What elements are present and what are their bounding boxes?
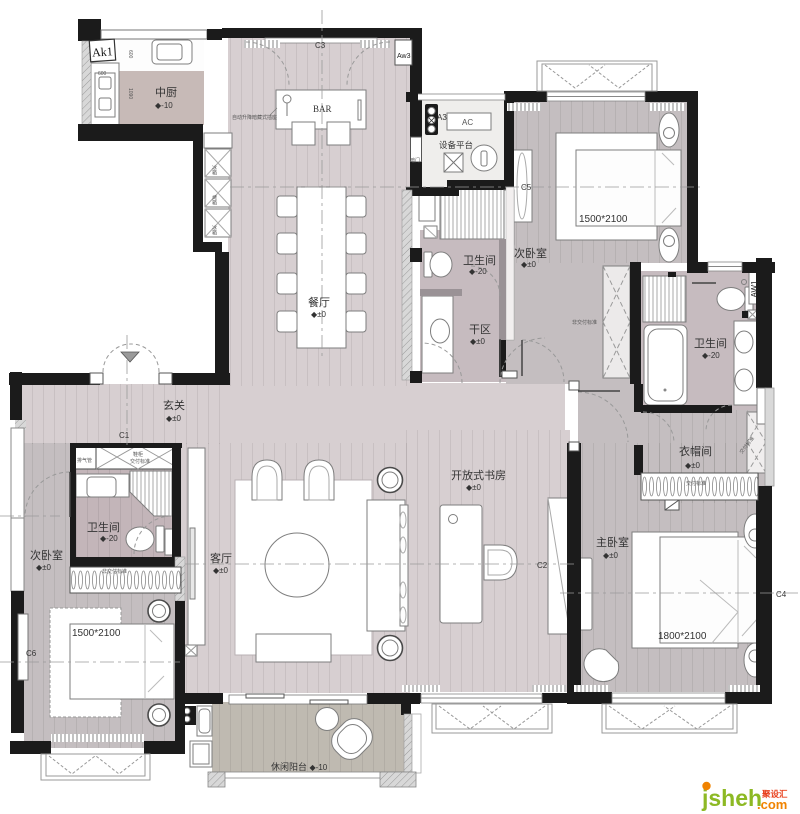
svg-text:非交付标准: 非交付标准 bbox=[102, 568, 127, 575]
svg-text:餐厅: 餐厅 bbox=[308, 295, 330, 309]
svg-text:暗门: 暗门 bbox=[410, 157, 420, 164]
svg-text:.com: .com bbox=[757, 797, 787, 812]
svg-text:冰箱: 冰箱 bbox=[211, 164, 217, 176]
svg-text:C5: C5 bbox=[521, 183, 532, 192]
svg-text:非交付标准: 非交付标准 bbox=[572, 319, 597, 326]
svg-text:交付标准: 交付标准 bbox=[686, 480, 706, 487]
svg-text:BAR: BAR bbox=[313, 104, 332, 114]
svg-text:◆±0: ◆±0 bbox=[36, 563, 52, 572]
svg-text:主卧室: 主卧室 bbox=[596, 535, 629, 549]
svg-text:◆±0: ◆±0 bbox=[603, 551, 619, 560]
svg-text:客厅: 客厅 bbox=[210, 551, 232, 565]
svg-text:冰箱: 冰箱 bbox=[211, 224, 217, 236]
svg-text:600: 600 bbox=[127, 50, 133, 59]
svg-text:玄关: 玄关 bbox=[163, 398, 185, 412]
svg-text:卫生间: 卫生间 bbox=[694, 336, 727, 350]
svg-text:◆±0: ◆±0 bbox=[166, 414, 182, 423]
svg-text:◆±0: ◆±0 bbox=[685, 461, 701, 470]
svg-text:排气管: 排气管 bbox=[77, 457, 92, 464]
svg-text:◆-20: ◆-20 bbox=[469, 267, 487, 276]
svg-text:A3: A3 bbox=[437, 113, 447, 122]
svg-text:◆-20: ◆-20 bbox=[702, 351, 720, 360]
svg-text:◆±0: ◆±0 bbox=[213, 566, 229, 575]
svg-text:Ak1: Ak1 bbox=[92, 44, 114, 59]
svg-text:1800*2100: 1800*2100 bbox=[658, 631, 707, 642]
svg-text:次卧室: 次卧室 bbox=[514, 246, 547, 260]
svg-text:1500*2100: 1500*2100 bbox=[72, 628, 121, 639]
svg-text:AC: AC bbox=[462, 118, 473, 127]
svg-text:开放式书房: 开放式书房 bbox=[451, 468, 506, 482]
svg-text:衣帽间: 衣帽间 bbox=[679, 444, 712, 458]
svg-text:设备平台: 设备平台 bbox=[439, 140, 473, 150]
svg-text:1090: 1090 bbox=[127, 88, 133, 99]
svg-text:鞋柜: 鞋柜 bbox=[133, 451, 143, 458]
svg-text:C6: C6 bbox=[26, 649, 37, 658]
svg-text:1500*2100: 1500*2100 bbox=[579, 214, 628, 225]
svg-text:◆-10: ◆-10 bbox=[155, 101, 173, 110]
svg-text:AW1: AW1 bbox=[750, 280, 759, 298]
svg-text:jsheh: jsheh bbox=[701, 785, 762, 811]
svg-text:◆±0: ◆±0 bbox=[311, 310, 327, 319]
svg-text:C4: C4 bbox=[776, 590, 787, 599]
svg-text:次卧室: 次卧室 bbox=[30, 548, 63, 562]
svg-text:聚设汇: 聚设汇 bbox=[761, 789, 788, 799]
svg-text:中厨: 中厨 bbox=[155, 86, 177, 99]
svg-text:◆±0: ◆±0 bbox=[466, 483, 482, 492]
svg-text:干区: 干区 bbox=[469, 324, 491, 336]
svg-text:卫生间: 卫生间 bbox=[463, 253, 496, 267]
svg-text:C3: C3 bbox=[315, 41, 326, 50]
svg-text:卫生间: 卫生间 bbox=[87, 520, 120, 534]
svg-text:烤箱: 烤箱 bbox=[211, 194, 217, 206]
svg-text:C2: C2 bbox=[537, 561, 548, 570]
svg-text:Aw3: Aw3 bbox=[397, 53, 411, 60]
svg-text:◆±0: ◆±0 bbox=[470, 337, 486, 346]
svg-text:交付标准: 交付标准 bbox=[130, 458, 150, 465]
svg-text:C1: C1 bbox=[119, 431, 130, 440]
svg-text:休闲阳台 ◆-10: 休闲阳台 ◆-10 bbox=[271, 761, 328, 772]
svg-text:◆-20: ◆-20 bbox=[100, 534, 118, 543]
svg-text:600: 600 bbox=[98, 71, 107, 77]
svg-text:◆±0: ◆±0 bbox=[521, 260, 537, 269]
